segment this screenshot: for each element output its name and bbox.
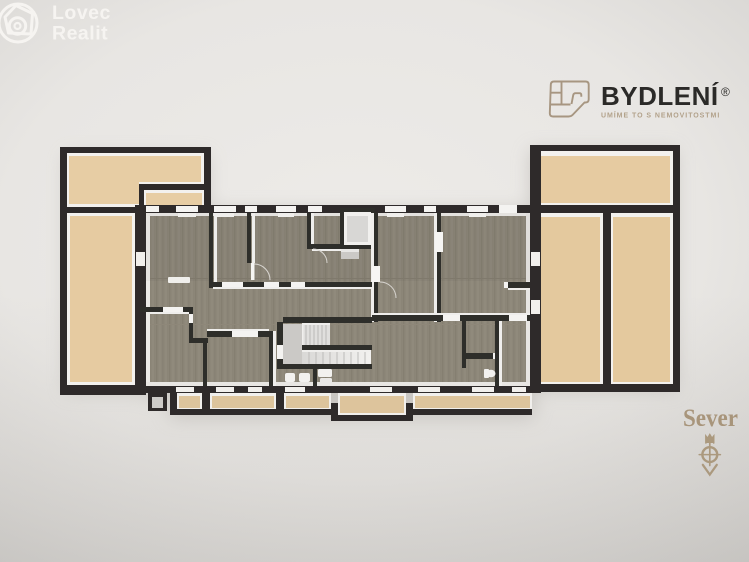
svg-text:UMÍME TO S NEMOVITOSTMI: UMÍME TO S NEMOVITOSTMI (601, 111, 720, 120)
svg-text:®: ® (721, 85, 730, 99)
svg-text:Lovec: Lovec (52, 2, 111, 24)
svg-text:Sever: Sever (683, 405, 738, 432)
svg-text:BYDLENÍ: BYDLENÍ (601, 81, 719, 111)
svg-text:Realit: Realit (52, 23, 108, 45)
